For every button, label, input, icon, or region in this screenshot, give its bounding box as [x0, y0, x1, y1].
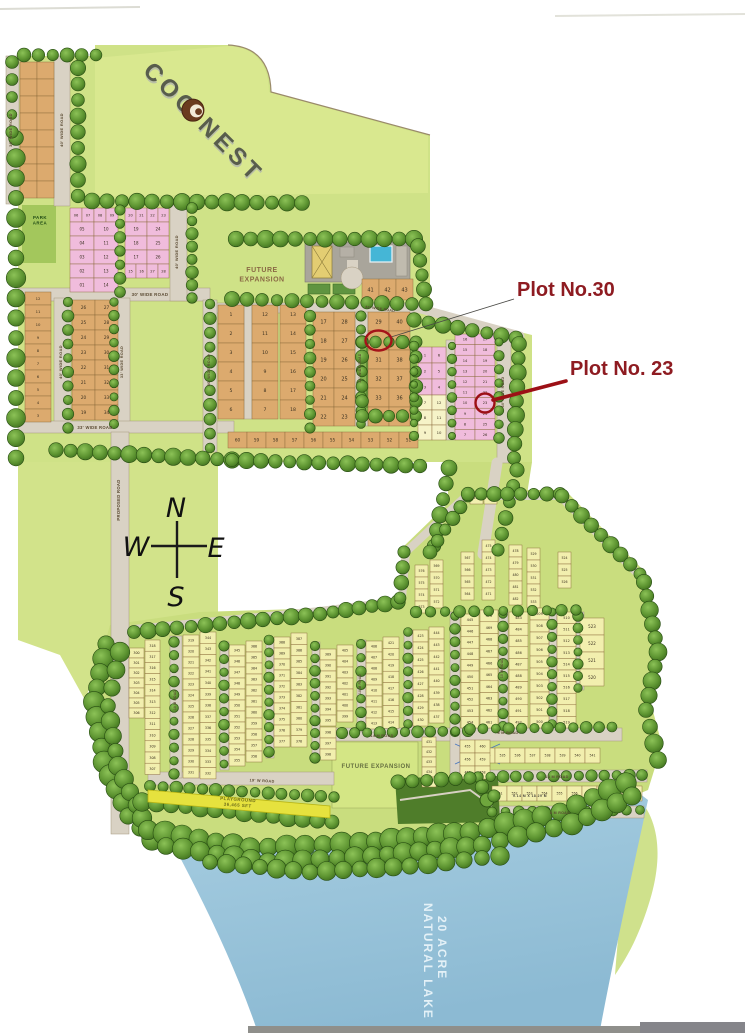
plot-number: 379: [296, 728, 302, 732]
plot-cell[interactable]: [37, 130, 54, 147]
plot-number: 330: [188, 760, 194, 764]
plot-number: 404: [342, 660, 348, 664]
tree-icon: [431, 534, 444, 547]
tree-icon: [264, 672, 274, 682]
plot-number: 18: [483, 348, 488, 352]
plot-number: 347: [234, 671, 240, 675]
tree-icon: [305, 367, 316, 378]
tree-icon: [110, 379, 119, 388]
tree-icon: [574, 684, 583, 693]
plot-number: 473: [485, 568, 491, 572]
tree-icon: [649, 643, 667, 661]
plot-number: 28: [161, 269, 166, 273]
plot-number: 19: [483, 359, 488, 363]
tree-icon: [403, 692, 414, 703]
plot-number: 407: [371, 656, 377, 660]
plot-number: 25: [155, 240, 161, 245]
plot-number: 387: [296, 637, 302, 641]
plot-number: 501: [536, 708, 542, 712]
plot-number: 372: [279, 685, 285, 689]
plot-number: 348: [234, 682, 240, 686]
block-pink-b-bot: 15162728: [125, 264, 169, 278]
tree-icon: [304, 352, 316, 364]
tree-icon: [498, 634, 508, 644]
tree-icon: [213, 617, 227, 631]
plot-cell[interactable]: [37, 62, 54, 79]
tree-icon: [637, 770, 648, 781]
tree-icon: [641, 601, 659, 619]
plot-number: 23: [81, 350, 87, 355]
plot-number: 403: [342, 671, 348, 675]
plot-number: 312: [149, 711, 155, 715]
plot-cell[interactable]: [20, 62, 37, 79]
tree-icon: [90, 49, 102, 61]
plot-number: 408: [371, 667, 377, 671]
compass-north: N: [166, 493, 186, 524]
lake-label-natural: NATURAL LAKE: [421, 903, 435, 1020]
tree-icon: [450, 675, 460, 685]
plot-number: 357: [251, 744, 257, 748]
plot-number: 354: [234, 748, 240, 752]
plot-number: 322: [188, 672, 194, 676]
tree-icon: [436, 493, 449, 506]
area-label-text: FUTURE EXPANSION: [342, 764, 411, 770]
plot-number: 332: [205, 771, 211, 775]
tree-icon: [640, 589, 654, 603]
tree-icon: [530, 723, 539, 732]
plot-number: 60: [235, 438, 241, 443]
plot-cell[interactable]: [37, 147, 54, 164]
plot-number: 440: [433, 679, 439, 683]
tree-icon: [499, 684, 508, 693]
tree-icon: [100, 194, 115, 209]
tree-icon: [110, 338, 119, 347]
plot-number: 396: [325, 731, 331, 735]
tree-icon: [63, 339, 73, 349]
scan-smudge-top-left: [0, 7, 140, 9]
tree-icon: [450, 637, 460, 647]
tree-icon: [187, 254, 197, 264]
tree-icon: [537, 772, 546, 781]
plot-cell[interactable]: [20, 79, 37, 96]
tree-icon: [265, 698, 274, 707]
tree-icon: [484, 606, 494, 616]
plot-number: 08: [98, 213, 103, 217]
plot-number: 32: [104, 380, 110, 385]
plot-number: 10: [463, 401, 468, 405]
tree-icon: [71, 173, 86, 188]
tree-icon: [499, 647, 508, 656]
plot-number: 377: [279, 740, 285, 744]
plot-number: 413: [371, 722, 377, 726]
plot-number: 514: [563, 662, 569, 666]
tree-icon: [224, 291, 239, 306]
plot-number: 315: [149, 677, 155, 681]
plot-number: 16: [463, 338, 468, 342]
tree-icon: [187, 293, 198, 304]
tree-icon: [396, 410, 409, 423]
tree-icon: [377, 596, 393, 612]
tree-icon: [527, 605, 537, 615]
tree-icon: [63, 381, 73, 391]
tree-icon: [648, 659, 662, 673]
block-pink-a: 05040302011011121314: [70, 222, 118, 292]
plot-cell[interactable]: [20, 113, 37, 130]
plot-number: 488: [515, 674, 521, 678]
plot-number: 25: [341, 376, 347, 382]
tree-icon: [7, 349, 26, 368]
tree-icon: [450, 689, 459, 698]
plot-number: 441: [433, 667, 439, 671]
plot-number: 518: [563, 709, 569, 713]
plot-number: 424: [417, 646, 423, 650]
plot-number: 535: [499, 754, 505, 758]
swimming-pool: [370, 246, 392, 262]
site-map: 20 ACRE NATURAL LAKE 0607080905040302011…: [0, 0, 745, 1033]
road-label: 40' WIDE ROAD: [58, 345, 63, 379]
tree-icon: [573, 659, 583, 669]
tree-icon: [305, 339, 315, 349]
road-label: 14 M ROAD: [370, 734, 393, 738]
tree-icon: [510, 463, 524, 477]
plot-number: 418: [388, 675, 394, 679]
plot-number: 391: [325, 675, 331, 679]
plot-cell[interactable]: [37, 181, 54, 198]
tree-icon: [209, 783, 222, 796]
tree-icon: [486, 772, 496, 782]
tree-icon: [391, 775, 405, 789]
tree-icon: [574, 636, 583, 645]
plot-number: 20: [128, 213, 133, 217]
plot-number: 320: [188, 650, 194, 654]
tree-icon: [184, 783, 196, 795]
plot-number: 18: [320, 338, 326, 344]
plot-number: 446: [467, 629, 473, 633]
plot-number: 20: [483, 369, 488, 373]
plot-number: 52: [387, 438, 393, 443]
tree-icon: [115, 219, 124, 228]
plot-number: 443: [433, 643, 439, 647]
tree-icon: [237, 786, 248, 797]
tree-icon: [155, 622, 170, 637]
tree-icon: [304, 408, 315, 419]
plot-number: 506: [536, 648, 542, 652]
plot-number: 302: [133, 671, 139, 675]
plot-number: 442: [433, 655, 439, 659]
plot-number: 504: [536, 672, 542, 676]
plot-number: 386: [296, 648, 302, 652]
tree-icon: [311, 654, 320, 663]
plot-number: 09: [110, 213, 115, 217]
tree-icon: [158, 838, 175, 855]
tree-icon: [574, 648, 582, 656]
lawn-1: [308, 284, 330, 294]
tree-icon: [306, 396, 315, 405]
plot-number: 349: [234, 693, 240, 697]
plot-number: 537: [529, 754, 535, 758]
tree-icon: [547, 707, 557, 717]
tree-icon: [487, 807, 497, 817]
tree-icon: [109, 405, 119, 415]
tree-icon: [409, 431, 419, 441]
tree-icon: [368, 409, 382, 423]
tree-icon: [594, 722, 605, 733]
tree-icon: [352, 861, 368, 877]
tree-icon: [410, 368, 418, 376]
plot-number: 392: [325, 686, 331, 690]
plot-number: 37: [396, 376, 402, 382]
plot-number: 28: [341, 319, 347, 325]
tree-icon: [298, 608, 313, 623]
tree-icon: [478, 724, 488, 734]
block-west-column: 1211109876543: [25, 292, 51, 422]
plot-number: 531: [530, 576, 536, 580]
tree-icon: [273, 231, 289, 247]
tree-icon: [152, 449, 166, 463]
block-row-51-60: 60595857565554535251: [228, 432, 418, 448]
tree-icon: [6, 268, 26, 288]
tree-icon: [310, 716, 320, 726]
plot-number: 449: [467, 664, 473, 668]
tree-icon: [8, 170, 25, 187]
plot-number: 55: [330, 438, 336, 443]
tree-icon: [410, 606, 422, 618]
tree-icon: [357, 694, 366, 703]
tree-icon: [7, 429, 24, 446]
tree-icon: [396, 335, 409, 348]
plot-number: 415: [388, 709, 394, 713]
tree-icon: [219, 694, 229, 704]
plot-number: 564: [464, 592, 470, 596]
plot-number: 14: [103, 282, 109, 287]
plot-number: 42: [384, 287, 390, 293]
plot-cell[interactable]: [37, 79, 54, 96]
tree-icon: [220, 760, 228, 768]
plot-cell[interactable]: [37, 96, 54, 113]
tree-icon: [244, 232, 258, 246]
tree-icon: [310, 753, 321, 764]
plot-number: 8: [264, 388, 267, 394]
plot-number: 15: [290, 350, 296, 356]
plot-number: 390: [325, 664, 331, 668]
tree-icon: [410, 406, 418, 414]
plot-number: 416: [388, 698, 394, 702]
tree-icon: [203, 855, 218, 870]
tree-icon: [499, 606, 508, 615]
plot-number: 369: [279, 652, 285, 656]
tree-icon: [451, 727, 460, 736]
plot-number: 376: [279, 729, 285, 733]
plot-number: 2: [230, 331, 233, 337]
tree-icon: [481, 327, 493, 339]
plot-number: 425: [417, 658, 423, 662]
plot-number: 15: [128, 269, 133, 273]
tree-icon: [195, 451, 210, 466]
plot-number: 22: [81, 365, 87, 370]
plot-number: 460: [479, 745, 485, 749]
plot-number: 319: [188, 639, 194, 643]
plot-number: 27: [104, 305, 110, 310]
tree-icon: [265, 648, 274, 657]
plot-number: 576: [418, 569, 424, 573]
tree-icon: [403, 706, 413, 716]
tree-icon: [440, 607, 450, 617]
plot-number: 374: [279, 707, 285, 711]
tree-icon: [400, 727, 410, 737]
tree-icon: [253, 453, 268, 468]
tree-icon: [264, 709, 275, 720]
tree-icon: [64, 354, 73, 363]
block-pink-b: 191817242526: [125, 222, 169, 264]
plot-number: 04: [79, 240, 85, 245]
plot-number: 466: [486, 661, 492, 665]
plot-cell[interactable]: [37, 113, 54, 130]
road-label: 40' WIDE ROAD: [59, 113, 64, 147]
tree-icon: [327, 606, 339, 618]
road-label: 30' WIDE ROAD: [207, 354, 211, 386]
plot-number: 13: [290, 312, 296, 318]
tree-icon: [317, 862, 336, 881]
plot-number: 417: [388, 686, 394, 690]
plot-number: 301: [133, 661, 139, 665]
tree-icon: [413, 254, 427, 268]
tree-icon: [357, 653, 366, 662]
compass-east: E: [207, 533, 224, 564]
tree-icon: [641, 687, 657, 703]
plot-number: 472: [485, 580, 491, 584]
tree-icon: [411, 239, 426, 254]
tree-icon: [361, 231, 378, 248]
plot-number: 555: [556, 792, 562, 796]
tree-icon: [115, 205, 125, 215]
tree-icon: [475, 851, 490, 866]
tree-icon: [32, 49, 45, 62]
plot-cell[interactable]: [20, 96, 37, 113]
tree-icon: [109, 351, 120, 362]
plot-number: 05: [79, 226, 85, 231]
tree-icon: [219, 719, 230, 730]
tree-icon: [447, 393, 457, 403]
plot-number: 421: [388, 641, 394, 645]
tree-icon: [441, 460, 457, 476]
plot-number: 434: [426, 770, 432, 774]
plot-cell[interactable]: [37, 164, 54, 181]
road-label: 33' WIDE ROAD: [77, 425, 112, 430]
tree-icon: [110, 393, 118, 401]
plot-number: 11: [463, 391, 468, 395]
plot-number: 307: [149, 767, 155, 771]
road-label: 8 M ROAD: [498, 731, 519, 735]
plot-number: 10: [36, 322, 41, 327]
tree-icon: [267, 859, 286, 878]
tree-icon: [127, 625, 140, 638]
plot-number: 529: [530, 552, 536, 556]
scanned-map-page: 20 ACRE NATURAL LAKE 0607080905040302011…: [0, 0, 745, 1033]
plot-number: 334: [205, 749, 211, 753]
plot-number: 353: [234, 737, 240, 741]
tree-icon: [450, 320, 465, 335]
plot-number: 431: [426, 740, 432, 744]
plot-number: 401: [342, 693, 348, 697]
plot-number: 25: [81, 320, 87, 325]
block-north-strip: [20, 62, 54, 198]
plot-number: 12: [36, 296, 41, 301]
tree-icon: [205, 443, 215, 453]
tree-icon: [310, 666, 321, 677]
tree-icon: [304, 310, 316, 322]
plot-number: 23: [161, 213, 166, 217]
plot-number: 394: [325, 708, 331, 712]
tree-icon: [437, 853, 455, 871]
tree-icon: [447, 354, 457, 364]
tree-icon: [115, 246, 126, 257]
tree-icon: [108, 447, 122, 461]
tree-icon: [301, 789, 314, 802]
tree-icon: [170, 717, 178, 725]
tree-icon: [475, 780, 489, 794]
tree-icon: [495, 338, 503, 346]
plot-number: 19: [81, 410, 87, 415]
plot-number: 373: [279, 696, 285, 700]
tree-icon: [75, 49, 88, 62]
road-label: 30' WIDE ROAD: [358, 353, 362, 382]
plot-number: 414: [388, 721, 394, 725]
plot-number: 395: [325, 719, 331, 723]
tree-icon: [500, 487, 514, 501]
plot-number: 304: [133, 691, 139, 695]
tree-icon: [295, 196, 310, 211]
plot-number: 405: [342, 649, 348, 653]
tree-icon: [315, 790, 327, 802]
plot-number: 12: [437, 400, 442, 405]
plot-number: 502: [536, 696, 542, 700]
tree-icon: [115, 287, 126, 298]
tree-icon: [418, 854, 438, 874]
plot-number: 17: [133, 254, 139, 259]
tree-icon: [416, 269, 428, 281]
tree-icon: [475, 488, 487, 500]
tree-icon: [104, 680, 120, 696]
tree-icon: [451, 650, 460, 659]
tree-icon: [439, 476, 454, 491]
park-area-patch: [22, 205, 56, 263]
tree-icon: [329, 792, 340, 803]
plot-number: 27: [341, 338, 347, 344]
plot-number: 03: [79, 254, 85, 259]
plot-number: 355: [234, 759, 240, 763]
tree-icon: [8, 310, 24, 326]
plot-number: 427: [417, 682, 423, 686]
tree-icon: [495, 527, 509, 541]
tree-icon: [454, 606, 466, 618]
tree-icon: [204, 327, 215, 338]
plot-number: 7: [264, 407, 267, 413]
plot-number: 305: [133, 701, 139, 705]
tree-icon: [507, 826, 528, 847]
tree-icon: [170, 664, 179, 673]
plot-number: 451: [467, 686, 473, 690]
plot-number: 478: [512, 549, 518, 553]
tree-icon: [165, 448, 182, 465]
road-segment: [18, 421, 234, 433]
tree-icon: [110, 298, 119, 307]
tree-icon: [498, 511, 513, 526]
tree-icon: [310, 641, 320, 651]
plot-number: 438: [433, 703, 439, 707]
tree-icon: [185, 620, 197, 632]
plot-number: 463: [486, 697, 492, 701]
tree-icon: [285, 862, 302, 879]
